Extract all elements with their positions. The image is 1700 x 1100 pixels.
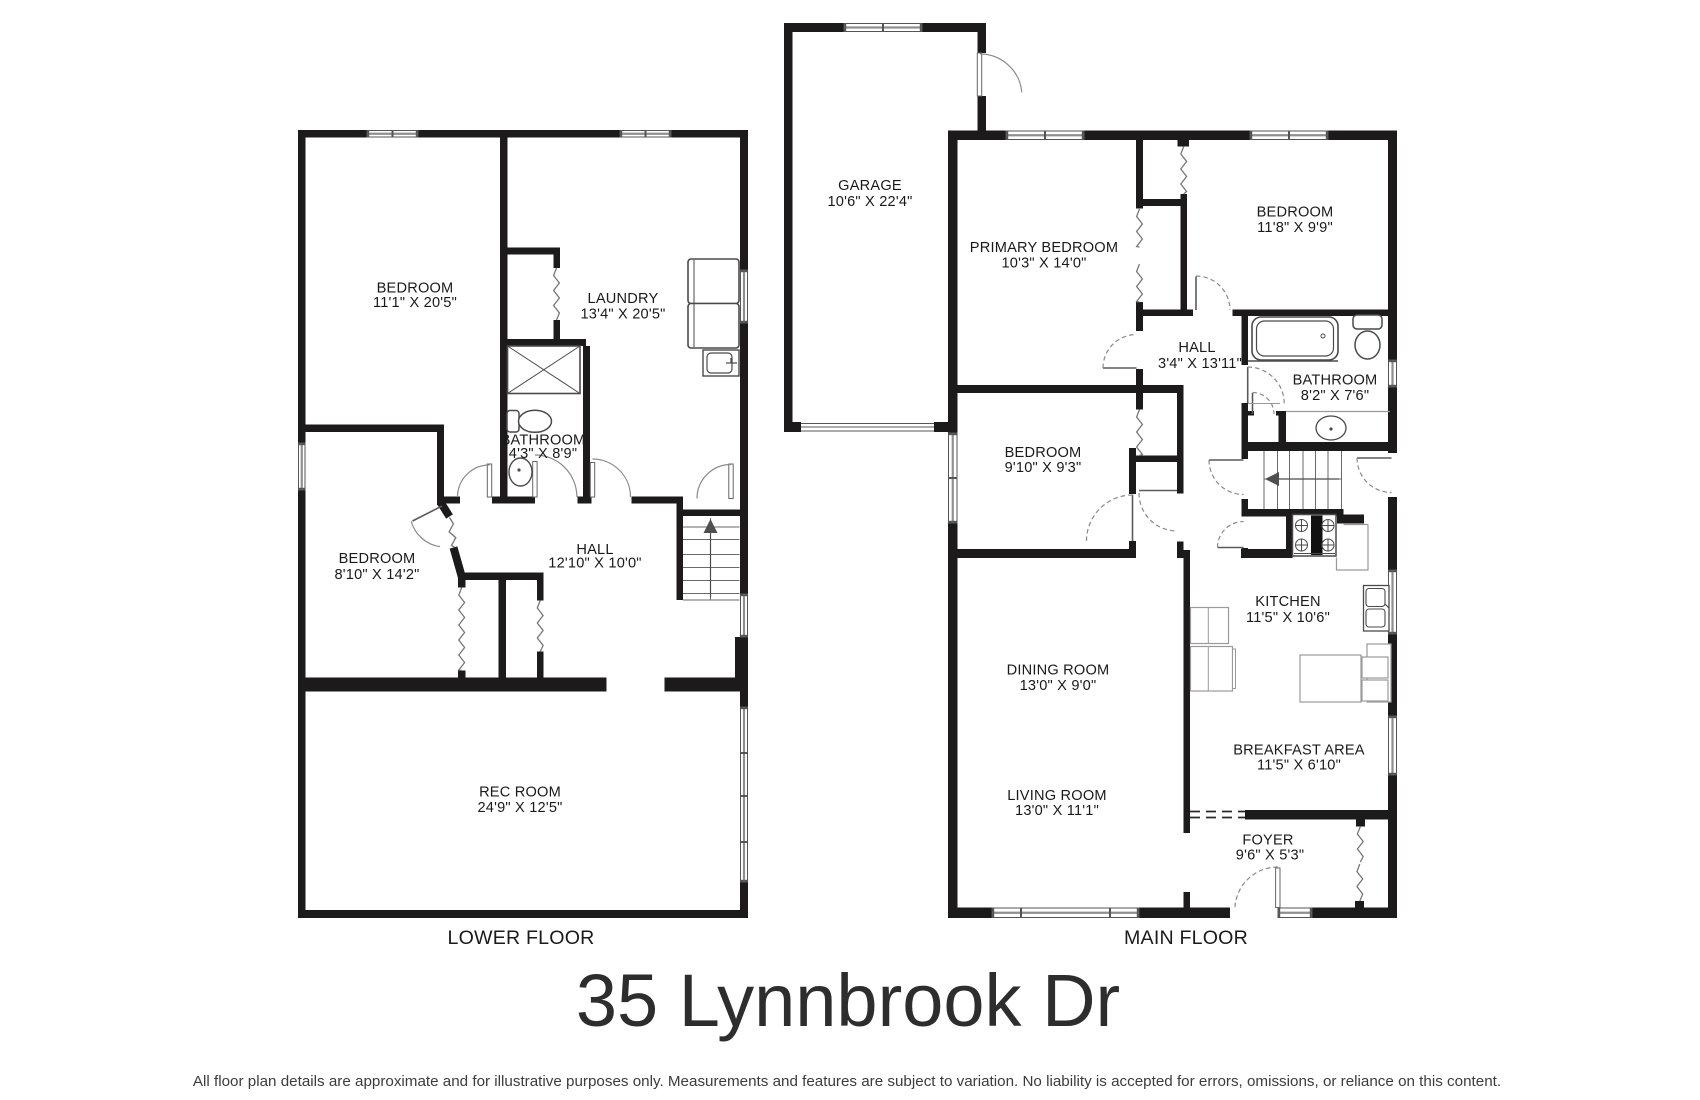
svg-text:13'0" X 11'1": 13'0" X 11'1" bbox=[1015, 803, 1099, 819]
svg-text:LIVING ROOM: LIVING ROOM bbox=[1007, 788, 1107, 804]
svg-text:4'3" X 8'9": 4'3" X 8'9" bbox=[509, 446, 577, 462]
svg-text:10'3" X 14'0": 10'3" X 14'0" bbox=[1001, 256, 1086, 272]
svg-text:11'8" X 9'9": 11'8" X 9'9" bbox=[1257, 220, 1333, 236]
svg-text:DINING ROOM: DINING ROOM bbox=[1007, 663, 1110, 679]
svg-text:FOYER: FOYER bbox=[1242, 833, 1293, 849]
svg-text:LAUNDRY: LAUNDRY bbox=[588, 291, 659, 307]
svg-text:KITCHEN: KITCHEN bbox=[1255, 594, 1320, 610]
svg-text:PRIMARY BEDROOM: PRIMARY BEDROOM bbox=[970, 240, 1118, 256]
svg-text:LOWER FLOOR: LOWER FLOOR bbox=[448, 927, 595, 949]
svg-text:9'10" X 9'3": 9'10" X 9'3" bbox=[1005, 460, 1082, 476]
svg-text:11'1" X 20'5": 11'1" X 20'5" bbox=[373, 295, 457, 311]
svg-text:REC ROOM: REC ROOM bbox=[479, 785, 561, 801]
svg-text:BEDROOM: BEDROOM bbox=[339, 551, 416, 567]
svg-text:9'6" X 5'3": 9'6" X 5'3" bbox=[1236, 848, 1304, 864]
svg-text:BREAKFAST AREA: BREAKFAST AREA bbox=[1233, 743, 1365, 759]
svg-text:12'10" X 10'0": 12'10" X 10'0" bbox=[548, 556, 641, 572]
svg-text:24'9" X 12'5": 24'9" X 12'5" bbox=[477, 800, 562, 816]
svg-text:3'4" X 13'11": 3'4" X 13'11" bbox=[1158, 356, 1242, 372]
svg-text:35 Lynnbrook Dr: 35 Lynnbrook Dr bbox=[576, 959, 1120, 1042]
svg-text:GARAGE: GARAGE bbox=[838, 178, 902, 194]
svg-text:13'4" X 20'5": 13'4" X 20'5" bbox=[580, 307, 665, 323]
svg-text:All floor plan details are app: All floor plan details are approximate a… bbox=[193, 1073, 1501, 1090]
svg-text:10'6" X 22'4": 10'6" X 22'4" bbox=[827, 194, 912, 210]
svg-text:HALL: HALL bbox=[1178, 340, 1215, 356]
svg-text:BEDROOM: BEDROOM bbox=[1005, 445, 1082, 461]
svg-text:8'2" X 7'6": 8'2" X 7'6" bbox=[1301, 388, 1369, 404]
svg-text:8'10" X 14'2": 8'10" X 14'2" bbox=[334, 567, 419, 583]
svg-text:BATHROOM: BATHROOM bbox=[1293, 373, 1378, 389]
svg-text:11'5" X 10'6": 11'5" X 10'6" bbox=[1246, 610, 1330, 626]
svg-text:13'0" X 9'0": 13'0" X 9'0" bbox=[1020, 678, 1097, 694]
svg-text:MAIN FLOOR: MAIN FLOOR bbox=[1124, 927, 1248, 949]
svg-text:BEDROOM: BEDROOM bbox=[1257, 205, 1334, 221]
svg-text:11'5" X 6'10": 11'5" X 6'10" bbox=[1257, 758, 1341, 774]
